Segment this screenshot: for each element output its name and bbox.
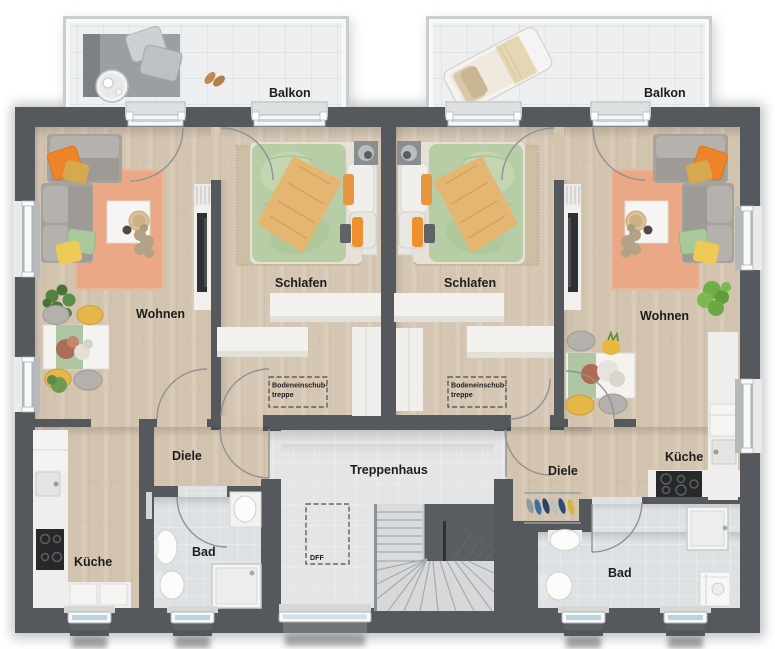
svg-text:Küche: Küche	[74, 555, 112, 569]
svg-text:treppe: treppe	[451, 391, 473, 399]
svg-text:Bad: Bad	[192, 545, 216, 559]
svg-text:Balkon: Balkon	[269, 86, 311, 100]
svg-text:Diele: Diele	[172, 449, 202, 463]
svg-text:Bad: Bad	[608, 566, 632, 580]
svg-text:Bodeneinschub-: Bodeneinschub-	[451, 382, 507, 390]
svg-text:Küche: Küche	[665, 450, 703, 464]
svg-text:Schlafen: Schlafen	[275, 276, 327, 290]
svg-text:DFF: DFF	[310, 554, 324, 562]
svg-text:Diele: Diele	[548, 464, 578, 478]
svg-text:treppe: treppe	[272, 391, 294, 399]
svg-text:Bodeneinschub-: Bodeneinschub-	[272, 382, 328, 390]
svg-text:Balkon: Balkon	[644, 86, 686, 100]
svg-text:Schlafen: Schlafen	[444, 276, 496, 290]
svg-text:Wohnen: Wohnen	[640, 309, 689, 323]
svg-text:Treppenhaus: Treppenhaus	[350, 463, 428, 477]
svg-text:Wohnen: Wohnen	[136, 307, 185, 321]
